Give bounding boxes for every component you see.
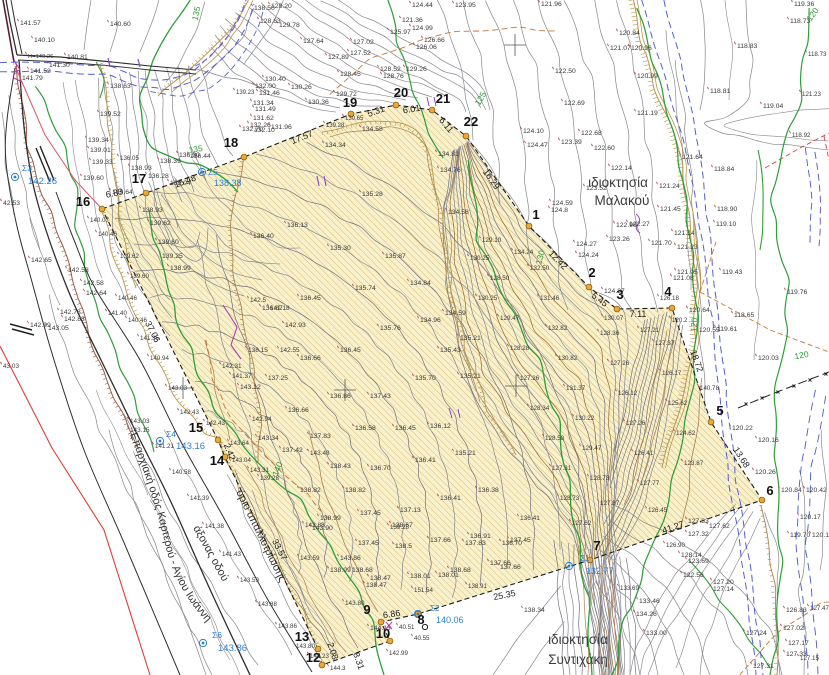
svg-text:127.02: 127.02: [783, 625, 804, 632]
svg-text:134.81: 134.81: [438, 151, 459, 158]
svg-text:138.01: 138.01: [438, 572, 459, 579]
svg-text:119.43: 119.43: [722, 269, 743, 276]
svg-text:123.69: 123.69: [688, 558, 709, 565]
svg-text:140.81: 140.81: [67, 54, 88, 61]
svg-text:134.26: 134.26: [636, 611, 657, 618]
svg-text:18: 18: [224, 135, 238, 150]
svg-text:139.64: 139.64: [112, 189, 133, 196]
svg-text:135.76: 135.76: [380, 325, 401, 332]
svg-text:127.02: 127.02: [353, 39, 374, 46]
svg-text:40.51: 40.51: [399, 624, 415, 631]
svg-text:141.35: 141.35: [140, 335, 159, 342]
svg-text:128.34: 128.34: [530, 405, 550, 412]
svg-text:22: 22: [464, 114, 478, 129]
svg-text:127.31: 127.31: [552, 465, 572, 472]
svg-text:136.28: 136.28: [148, 173, 169, 180]
svg-text:124.27: 124.27: [576, 241, 597, 248]
svg-text:138.39: 138.39: [160, 158, 181, 165]
svg-text:142.43: 142.43: [206, 420, 225, 427]
svg-text:141.52: 141.52: [30, 68, 51, 75]
svg-text:127.77: 127.77: [640, 480, 660, 487]
svg-text:Συντιχάκη: Συντιχάκη: [548, 652, 608, 667]
svg-text:126.66: 126.66: [424, 37, 445, 44]
svg-text:142.99: 142.99: [389, 650, 408, 657]
svg-text:120.16: 120.16: [812, 532, 829, 539]
svg-text:142.5: 142.5: [250, 297, 266, 304]
svg-text:142.58: 142.58: [83, 280, 104, 287]
svg-text:121.45: 121.45: [660, 206, 681, 213]
svg-text:135.21: 135.21: [460, 373, 481, 380]
svg-text:Σ5: Σ5: [208, 168, 218, 177]
svg-text:127.62: 127.62: [572, 520, 592, 527]
svg-text:129.26: 129.26: [406, 66, 427, 73]
svg-text:139.23: 139.23: [236, 90, 255, 96]
svg-text:142.78: 142.78: [60, 309, 81, 316]
svg-text:135.28: 135.28: [362, 191, 383, 198]
svg-text:136.41: 136.41: [415, 457, 436, 464]
svg-text:141.21: 141.21: [155, 443, 174, 450]
svg-text:138.99: 138.99: [330, 567, 351, 574]
svg-text:138.99: 138.99: [170, 265, 191, 272]
svg-text:123.95: 123.95: [455, 2, 476, 9]
svg-text:143.03: 143.03: [168, 385, 187, 392]
svg-text:120.22: 120.22: [732, 425, 753, 432]
svg-text:143.80: 143.80: [345, 600, 365, 607]
svg-text:120.42: 120.42: [806, 487, 827, 494]
svg-text:136.13: 136.13: [287, 222, 308, 229]
svg-text:143.90: 143.90: [312, 525, 333, 532]
svg-text:120.99: 120.99: [637, 73, 658, 80]
svg-text:118.65: 118.65: [734, 312, 755, 319]
svg-text:119.36: 119.36: [794, 1, 815, 8]
svg-text:130.26: 130.26: [291, 84, 312, 91]
svg-text:5: 5: [716, 403, 723, 418]
svg-text:143.05: 143.05: [48, 325, 69, 332]
svg-text:127.87: 127.87: [600, 500, 620, 507]
svg-text:6: 6: [766, 483, 773, 498]
svg-text:127.64: 127.64: [303, 38, 324, 45]
svg-text:143.48: 143.48: [310, 450, 330, 457]
svg-text:143.64: 143.64: [230, 440, 249, 447]
svg-text:120.16: 120.16: [758, 437, 779, 444]
svg-text:143.34: 143.34: [258, 435, 279, 442]
svg-text:127.15: 127.15: [800, 655, 819, 662]
svg-text:129.47: 129.47: [582, 445, 602, 452]
svg-text:126.17: 126.17: [662, 370, 682, 377]
svg-text:142.31: 142.31: [222, 363, 242, 370]
svg-text:143.15: 143.15: [130, 427, 150, 434]
svg-text:137.45: 137.45: [510, 537, 531, 544]
svg-text:136.86: 136.86: [330, 393, 351, 400]
svg-text:136.45: 136.45: [300, 295, 321, 302]
svg-text:138.01: 138.01: [410, 573, 431, 580]
svg-text:135.74: 135.74: [355, 285, 376, 292]
svg-text:17: 17: [132, 171, 146, 186]
svg-text:140.78: 140.78: [700, 385, 719, 392]
svg-text:128.63: 128.63: [260, 18, 281, 25]
svg-text:124.99: 124.99: [412, 25, 433, 32]
svg-text:137.42: 137.42: [282, 447, 303, 454]
svg-text:120.26: 120.26: [755, 469, 776, 476]
svg-text:122.68: 122.68: [581, 130, 602, 137]
svg-text:128.20: 128.20: [271, 3, 292, 10]
svg-text:124.47: 124.47: [527, 142, 548, 149]
svg-text:16: 16: [76, 194, 90, 209]
svg-text:137.45: 137.45: [358, 540, 379, 547]
svg-text:135.87: 135.87: [385, 253, 406, 260]
svg-text:136.58: 136.58: [355, 425, 376, 432]
svg-text:121.23: 121.23: [802, 91, 821, 98]
svg-text:142.64: 142.64: [86, 290, 107, 297]
svg-text:128.73: 128.73: [590, 475, 610, 482]
svg-text:139.60: 139.60: [158, 239, 179, 246]
svg-text:129.72: 129.72: [336, 91, 357, 98]
svg-text:134.24: 134.24: [514, 249, 534, 256]
svg-text:130.40: 130.40: [265, 76, 286, 83]
svg-text:129.10: 129.10: [482, 237, 502, 244]
svg-text:139.25: 139.25: [162, 253, 183, 260]
svg-text:137.83: 137.83: [465, 540, 486, 547]
svg-text:122.27: 122.27: [629, 221, 650, 228]
svg-text:118.73: 118.73: [790, 18, 811, 25]
svg-text:132.50: 132.50: [530, 265, 550, 272]
svg-text:142.94: 142.94: [252, 416, 272, 423]
svg-text:128.76: 128.76: [383, 73, 404, 80]
svg-text:128.73: 128.73: [560, 495, 580, 502]
svg-text:123.39: 123.39: [561, 139, 582, 146]
svg-text:21: 21: [436, 91, 450, 106]
svg-text:138.47: 138.47: [370, 575, 391, 582]
svg-text:141.40: 141.40: [108, 310, 127, 317]
svg-text:141.37: 141.37: [232, 373, 252, 380]
svg-text:141.30: 141.30: [49, 62, 70, 69]
svg-text:Σ4: Σ4: [166, 429, 176, 439]
svg-text:138.5: 138.5: [395, 543, 412, 550]
svg-text:2: 2: [588, 265, 595, 280]
svg-text:137.45: 137.45: [360, 510, 381, 517]
svg-text:140.07: 140.07: [90, 217, 109, 224]
svg-text:132.00: 132.00: [255, 83, 276, 90]
svg-text:126.90: 126.90: [666, 542, 685, 549]
svg-text:124.44: 124.44: [412, 2, 433, 9]
svg-text:40.55: 40.55: [414, 635, 430, 642]
svg-text:120.03: 120.03: [758, 355, 779, 362]
svg-text:131.49: 131.49: [255, 106, 276, 113]
svg-text:140.94: 140.94: [150, 355, 169, 362]
svg-text:132.82: 132.82: [548, 325, 568, 332]
svg-text:123.87: 123.87: [684, 460, 704, 467]
svg-text:125.62: 125.62: [668, 400, 688, 407]
svg-text:141.79: 141.79: [22, 75, 43, 82]
svg-text:124.62: 124.62: [676, 430, 696, 437]
svg-text:137.13: 137.13: [400, 507, 421, 514]
svg-text:119.70: 119.70: [790, 532, 811, 539]
svg-text:121.08: 121.08: [673, 275, 694, 282]
svg-text:126.12: 126.12: [618, 390, 638, 397]
svg-text:132.77: 132.77: [586, 566, 614, 576]
svg-text:126.83: 126.83: [786, 607, 807, 614]
svg-text:140.06: 140.06: [436, 615, 464, 625]
svg-text:139.34: 139.34: [88, 137, 109, 144]
svg-text:118.73: 118.73: [808, 51, 827, 58]
svg-text:137.83: 137.83: [310, 433, 331, 440]
svg-text:119.10: 119.10: [716, 221, 737, 228]
svg-text:135.30: 135.30: [330, 245, 351, 252]
svg-text:138.99: 138.99: [320, 515, 341, 522]
svg-text:121.14: 121.14: [674, 230, 695, 237]
svg-text:127.47: 127.47: [810, 605, 829, 612]
svg-text:136.41: 136.41: [440, 495, 461, 502]
svg-text:133.69: 133.69: [620, 585, 639, 592]
svg-text:151.54: 151.54: [414, 587, 433, 594]
svg-text:129.78: 129.78: [279, 22, 300, 29]
svg-text:127.52: 127.52: [350, 50, 371, 57]
svg-text:143.86: 143.86: [340, 555, 361, 562]
svg-text:140.60: 140.60: [110, 21, 131, 28]
svg-text:120.96: 120.96: [631, 45, 652, 52]
svg-text:130.22: 130.22: [575, 415, 595, 422]
svg-text:138.91: 138.91: [468, 583, 487, 590]
svg-text:120.64: 120.64: [689, 307, 710, 314]
svg-text:120.17: 120.17: [800, 514, 821, 521]
svg-text:138.43: 138.43: [330, 463, 351, 470]
svg-text:139.01: 139.01: [90, 147, 111, 154]
svg-text:122.56: 122.56: [683, 572, 704, 579]
svg-text:134.59: 134.59: [445, 310, 466, 317]
svg-text:13: 13: [295, 629, 309, 644]
svg-text:143.04: 143.04: [232, 457, 251, 464]
svg-text:127.24: 127.24: [746, 630, 767, 637]
svg-text:143.31: 143.31: [250, 467, 269, 474]
svg-text:15: 15: [189, 420, 203, 435]
svg-text:118.90: 118.90: [717, 206, 738, 213]
svg-text:131.46: 131.46: [540, 295, 560, 302]
svg-text:138.68: 138.68: [352, 567, 373, 574]
svg-text:136.45: 136.45: [340, 347, 361, 354]
svg-text:139.62: 139.62: [120, 253, 139, 260]
svg-text:137.43: 137.43: [370, 393, 391, 400]
svg-text:127.62: 127.62: [709, 523, 730, 530]
svg-text:138.63: 138.63: [110, 83, 131, 90]
svg-text:121.64: 121.64: [682, 154, 703, 161]
svg-text:127.89: 127.89: [328, 54, 349, 61]
svg-text:124.24: 124.24: [578, 252, 599, 259]
svg-text:120.55: 120.55: [699, 327, 720, 334]
svg-text:136.70: 136.70: [370, 465, 391, 472]
svg-text:133.46: 133.46: [639, 598, 660, 605]
svg-text:130.82: 130.82: [558, 355, 578, 362]
svg-text:144.13: 144.13: [370, 625, 391, 632]
svg-text:123.52: 123.52: [586, 185, 607, 192]
svg-text:118.81: 118.81: [710, 88, 731, 95]
svg-text:138.82: 138.82: [345, 487, 366, 494]
svg-text:134.34: 134.34: [325, 142, 346, 149]
svg-text:134.84: 134.84: [410, 280, 431, 287]
svg-text:127.26: 127.26: [610, 360, 630, 367]
svg-text:126.06: 126.06: [416, 44, 437, 51]
svg-text:127.14: 127.14: [713, 586, 734, 593]
svg-text:120: 120: [688, 317, 699, 332]
svg-text:141.18: 141.18: [270, 305, 290, 312]
svg-text:122.50: 122.50: [555, 68, 576, 75]
svg-text:144.23: 144.23: [310, 653, 329, 660]
svg-text:143.16: 143.16: [176, 441, 205, 452]
svg-text:143.03: 143.03: [130, 418, 150, 425]
svg-text:121.36: 121.36: [402, 17, 423, 24]
svg-text:140.46: 140.46: [118, 295, 137, 302]
svg-text:121.07: 121.07: [610, 45, 631, 52]
svg-text:128.50: 128.50: [490, 275, 510, 282]
svg-text:137.66: 137.66: [500, 564, 521, 571]
svg-text:121.24: 121.24: [659, 183, 680, 190]
svg-text:131.37: 131.37: [566, 385, 586, 392]
svg-text:130.65: 130.65: [345, 116, 364, 122]
svg-text:124.59: 124.59: [552, 200, 573, 207]
svg-text:121.70: 121.70: [651, 240, 672, 247]
svg-text:136.05: 136.05: [120, 155, 139, 162]
svg-text:121.19: 121.19: [637, 110, 658, 117]
svg-text:121.23: 121.23: [677, 244, 698, 251]
svg-text:135.21: 135.21: [455, 450, 476, 457]
svg-text:127.32: 127.32: [688, 531, 709, 538]
svg-text:130.07: 130.07: [604, 315, 624, 322]
svg-text:136.41: 136.41: [520, 515, 540, 522]
svg-text:Σ6: Σ6: [212, 630, 222, 640]
svg-text:136.91: 136.91: [470, 533, 491, 540]
svg-text:131.96: 131.96: [271, 124, 292, 131]
svg-text:Μαλακού: Μαλακού: [595, 193, 650, 208]
svg-text:142.43: 142.43: [180, 409, 199, 416]
svg-text:141.39: 141.39: [190, 495, 209, 502]
svg-text:142.65: 142.65: [31, 257, 52, 264]
svg-text:143.12: 143.12: [240, 384, 261, 391]
svg-text:8: 8: [417, 612, 424, 627]
svg-text:130.36: 130.36: [308, 99, 329, 106]
svg-text:120.84: 120.84: [619, 30, 640, 37]
svg-text:141.38: 141.38: [205, 523, 224, 530]
svg-text:143.88: 143.88: [258, 601, 277, 608]
svg-text:128.14: 128.14: [681, 552, 702, 559]
svg-text:143.86: 143.86: [218, 643, 247, 654]
svg-text:20: 20: [394, 85, 408, 100]
svg-text:128.28: 128.28: [510, 345, 530, 352]
svg-text:128.58: 128.58: [545, 435, 565, 442]
svg-text:119.61: 119.61: [717, 326, 738, 333]
svg-text:139.62: 139.62: [150, 220, 171, 227]
svg-text:120.84: 120.84: [781, 487, 802, 494]
svg-text:139.28: 139.28: [260, 475, 279, 482]
svg-text:143.59: 143.59: [240, 577, 259, 584]
svg-text:142.55: 142.55: [280, 347, 300, 354]
svg-text:139.28: 139.28: [390, 524, 409, 531]
svg-text:133.00: 133.00: [646, 630, 667, 637]
svg-text:134.58: 134.58: [448, 209, 469, 216]
svg-text:136.12: 136.12: [430, 423, 451, 430]
svg-text:126.45: 126.45: [648, 507, 668, 514]
svg-text:136.66: 136.66: [288, 407, 309, 414]
svg-text:Σ3: Σ3: [22, 163, 32, 173]
svg-text:H=140.26: H=140.26: [28, 54, 53, 60]
svg-text:127.21: 127.21: [640, 327, 660, 334]
svg-text:127.37: 127.37: [655, 340, 675, 347]
svg-text:142.83: 142.83: [64, 316, 85, 323]
svg-text:119.04: 119.04: [763, 103, 784, 110]
svg-text:136.66: 136.66: [300, 355, 321, 362]
svg-text:122.60: 122.60: [594, 145, 615, 152]
svg-text:136.44: 136.44: [190, 153, 211, 160]
svg-text:139.52: 139.52: [100, 111, 121, 118]
svg-text:130.25: 130.25: [478, 295, 498, 302]
svg-text:139.60: 139.60: [83, 175, 104, 182]
svg-text:137.25: 137.25: [268, 375, 288, 382]
svg-text:124.8: 124.8: [551, 207, 568, 214]
svg-text:142.93: 142.93: [285, 322, 306, 329]
svg-text:139.04: 139.04: [170, 180, 191, 187]
svg-text:127.17: 127.17: [788, 640, 809, 647]
svg-text:140.46: 140.46: [128, 317, 147, 324]
svg-text:128.36: 128.36: [600, 330, 620, 337]
svg-text:7: 7: [593, 538, 600, 553]
svg-text:1: 1: [532, 207, 539, 222]
svg-text:118.92: 118.92: [792, 132, 811, 139]
svg-text:126.41: 126.41: [634, 450, 654, 457]
svg-text:14: 14: [210, 453, 225, 468]
svg-text:142.53: 142.53: [68, 267, 89, 274]
svg-text:127.31: 127.31: [753, 663, 774, 670]
svg-text:136.40: 136.40: [253, 233, 274, 240]
svg-text:123.26: 123.26: [609, 236, 630, 243]
svg-text:42.53: 42.53: [3, 200, 20, 207]
svg-text:122.14: 122.14: [611, 165, 632, 172]
svg-text:142.26: 142.26: [28, 176, 57, 187]
svg-text:Σ2: Σ2: [430, 604, 440, 613]
svg-text:135.21: 135.21: [460, 335, 481, 342]
svg-text:126.18: 126.18: [660, 295, 679, 302]
svg-text:Σ1: Σ1: [580, 554, 590, 563]
svg-text:118.84: 118.84: [714, 166, 735, 173]
svg-text:138.93: 138.93: [142, 207, 163, 214]
svg-text:131.62: 131.62: [253, 115, 274, 122]
svg-text:135.43: 135.43: [440, 347, 461, 354]
svg-text:ιδιοκτησία: ιδιοκτησία: [548, 632, 608, 647]
svg-text:131.46: 131.46: [259, 90, 280, 97]
svg-text:138.93: 138.93: [131, 165, 152, 172]
svg-text:128.52: 128.52: [380, 66, 401, 73]
svg-text:127.26: 127.26: [520, 375, 540, 382]
svg-text:134.58: 134.58: [362, 126, 383, 133]
svg-text:139.33: 139.33: [92, 159, 113, 166]
svg-text:139.28: 139.28: [326, 123, 345, 129]
svg-text:143.59: 143.59: [300, 555, 320, 562]
svg-text:144.3: 144.3: [330, 665, 346, 672]
svg-text:118.83: 118.83: [737, 43, 758, 50]
svg-text:143.86: 143.86: [278, 623, 297, 630]
svg-text:136.38: 136.38: [478, 487, 499, 494]
svg-text:129.47: 129.47: [500, 315, 520, 322]
svg-text:128.45: 128.45: [340, 71, 361, 78]
svg-text:138.34: 138.34: [524, 607, 545, 614]
svg-text:127.33: 127.33: [688, 518, 709, 525]
svg-text:138.82: 138.82: [300, 487, 321, 494]
svg-text:7.11: 7.11: [630, 309, 647, 319]
svg-text:138.15: 138.15: [248, 347, 268, 354]
svg-text:139.60: 139.60: [130, 273, 149, 280]
svg-text:143.80: 143.80: [296, 643, 315, 650]
svg-text:127.20: 127.20: [713, 579, 734, 586]
svg-text:124.10: 124.10: [523, 128, 544, 135]
svg-text:122.69: 122.69: [564, 100, 585, 107]
svg-text:125.97: 125.97: [390, 29, 411, 36]
